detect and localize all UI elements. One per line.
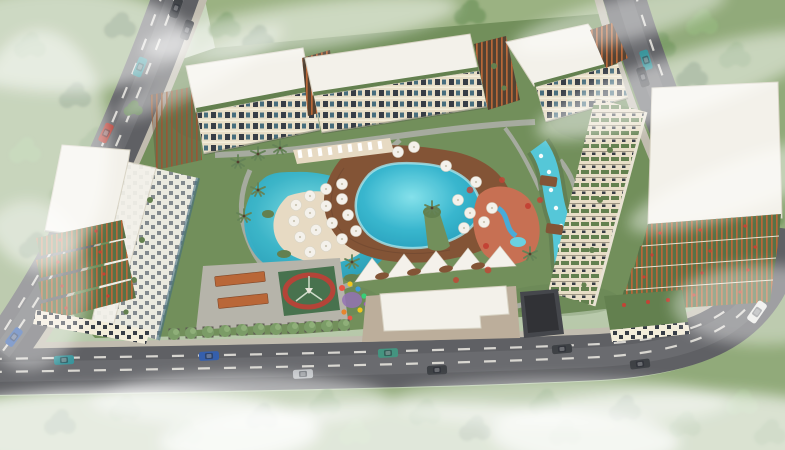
aerial-render-scene: Bird's-eye view of a mid-rise apartment … bbox=[0, 0, 785, 450]
render-canvas: Aerial 3D architectural rendering of a r… bbox=[0, 0, 785, 450]
haze-veil bbox=[0, 0, 785, 450]
